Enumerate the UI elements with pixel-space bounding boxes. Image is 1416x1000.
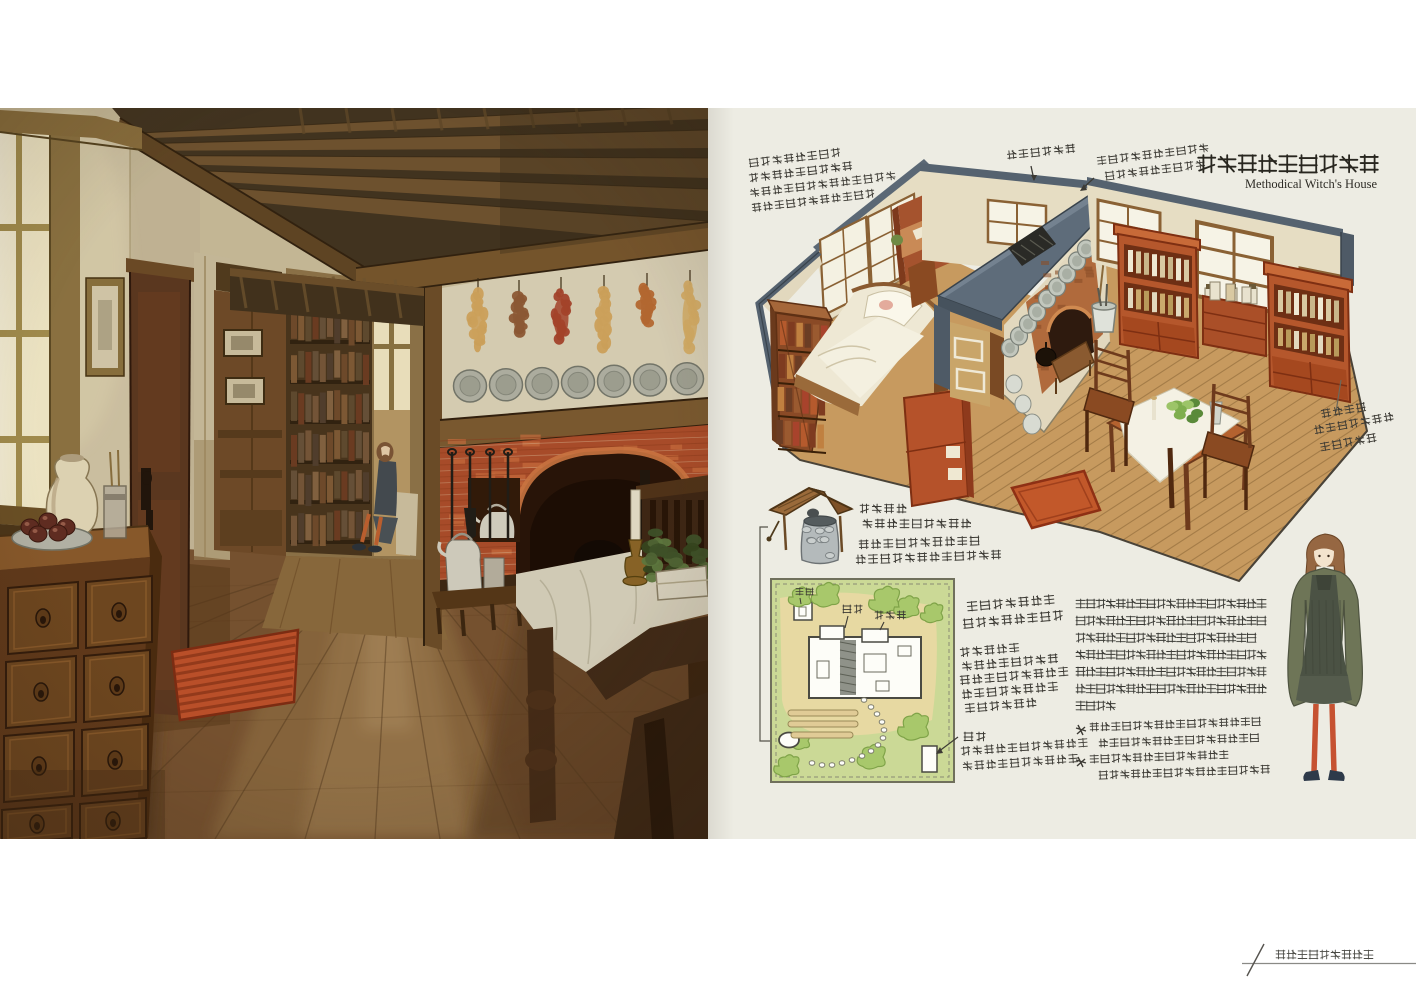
svg-text:Methodical Witch's House: Methodical Witch's House: [1245, 177, 1378, 191]
